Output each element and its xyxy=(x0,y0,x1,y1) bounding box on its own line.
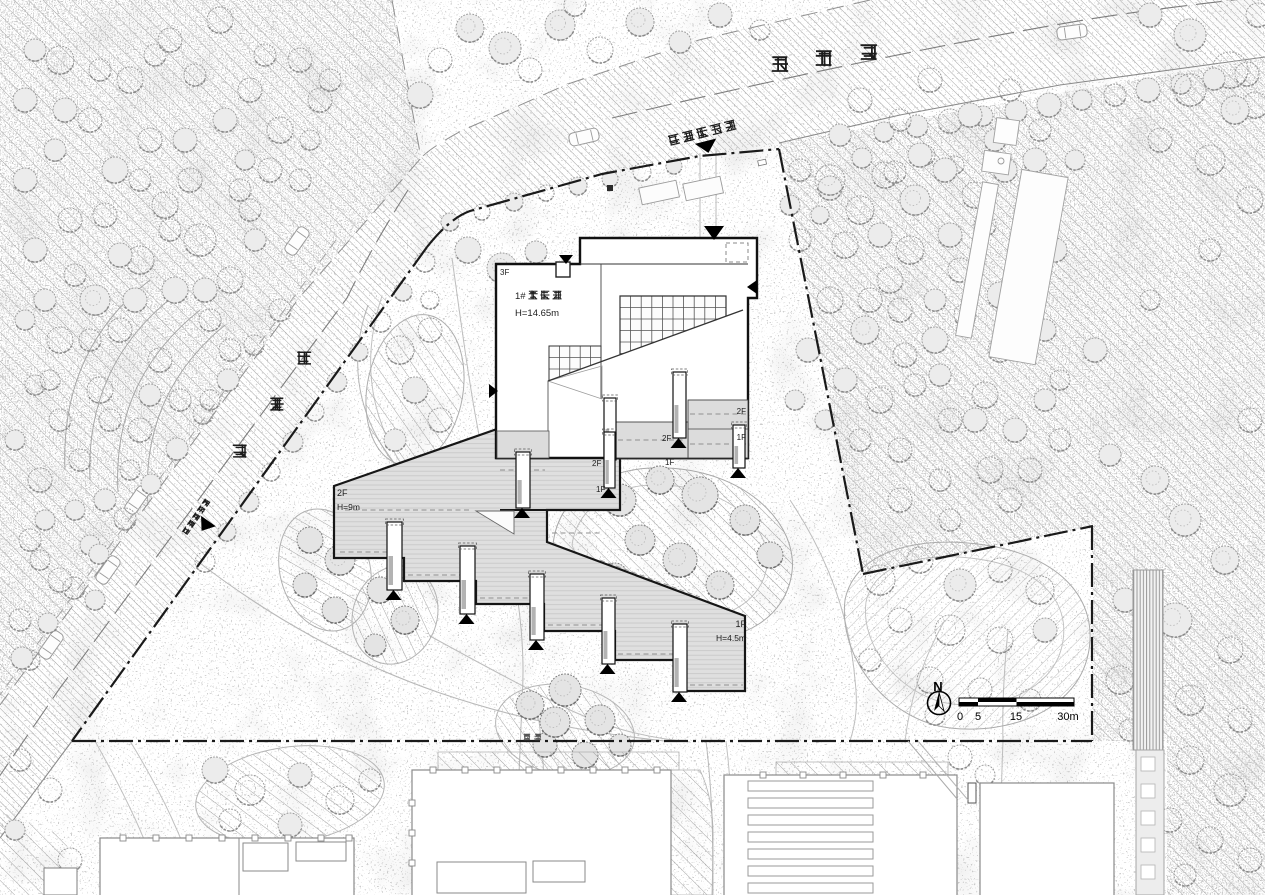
svg-text:1F: 1F xyxy=(735,619,746,629)
svg-text:5: 5 xyxy=(975,711,981,723)
svg-text:2F: 2F xyxy=(592,459,601,468)
svg-text:15: 15 xyxy=(1010,711,1022,723)
svg-text:H=9m: H=9m xyxy=(337,502,360,512)
svg-text:2F: 2F xyxy=(662,434,671,443)
svg-text:2F: 2F xyxy=(737,407,746,416)
svg-text:30m: 30m xyxy=(1057,711,1078,723)
svg-text:1F: 1F xyxy=(737,433,746,442)
svg-text:1#: 1# xyxy=(515,291,526,302)
svg-text:0: 0 xyxy=(957,711,963,723)
svg-text:2F: 2F xyxy=(337,488,348,498)
svg-text:1F: 1F xyxy=(665,458,674,467)
svg-text:H=4.5m: H=4.5m xyxy=(716,633,746,643)
svg-text:1F: 1F xyxy=(596,485,605,494)
svg-text:3F: 3F xyxy=(500,268,509,277)
svg-text:H=14.65m: H=14.65m xyxy=(515,308,559,319)
